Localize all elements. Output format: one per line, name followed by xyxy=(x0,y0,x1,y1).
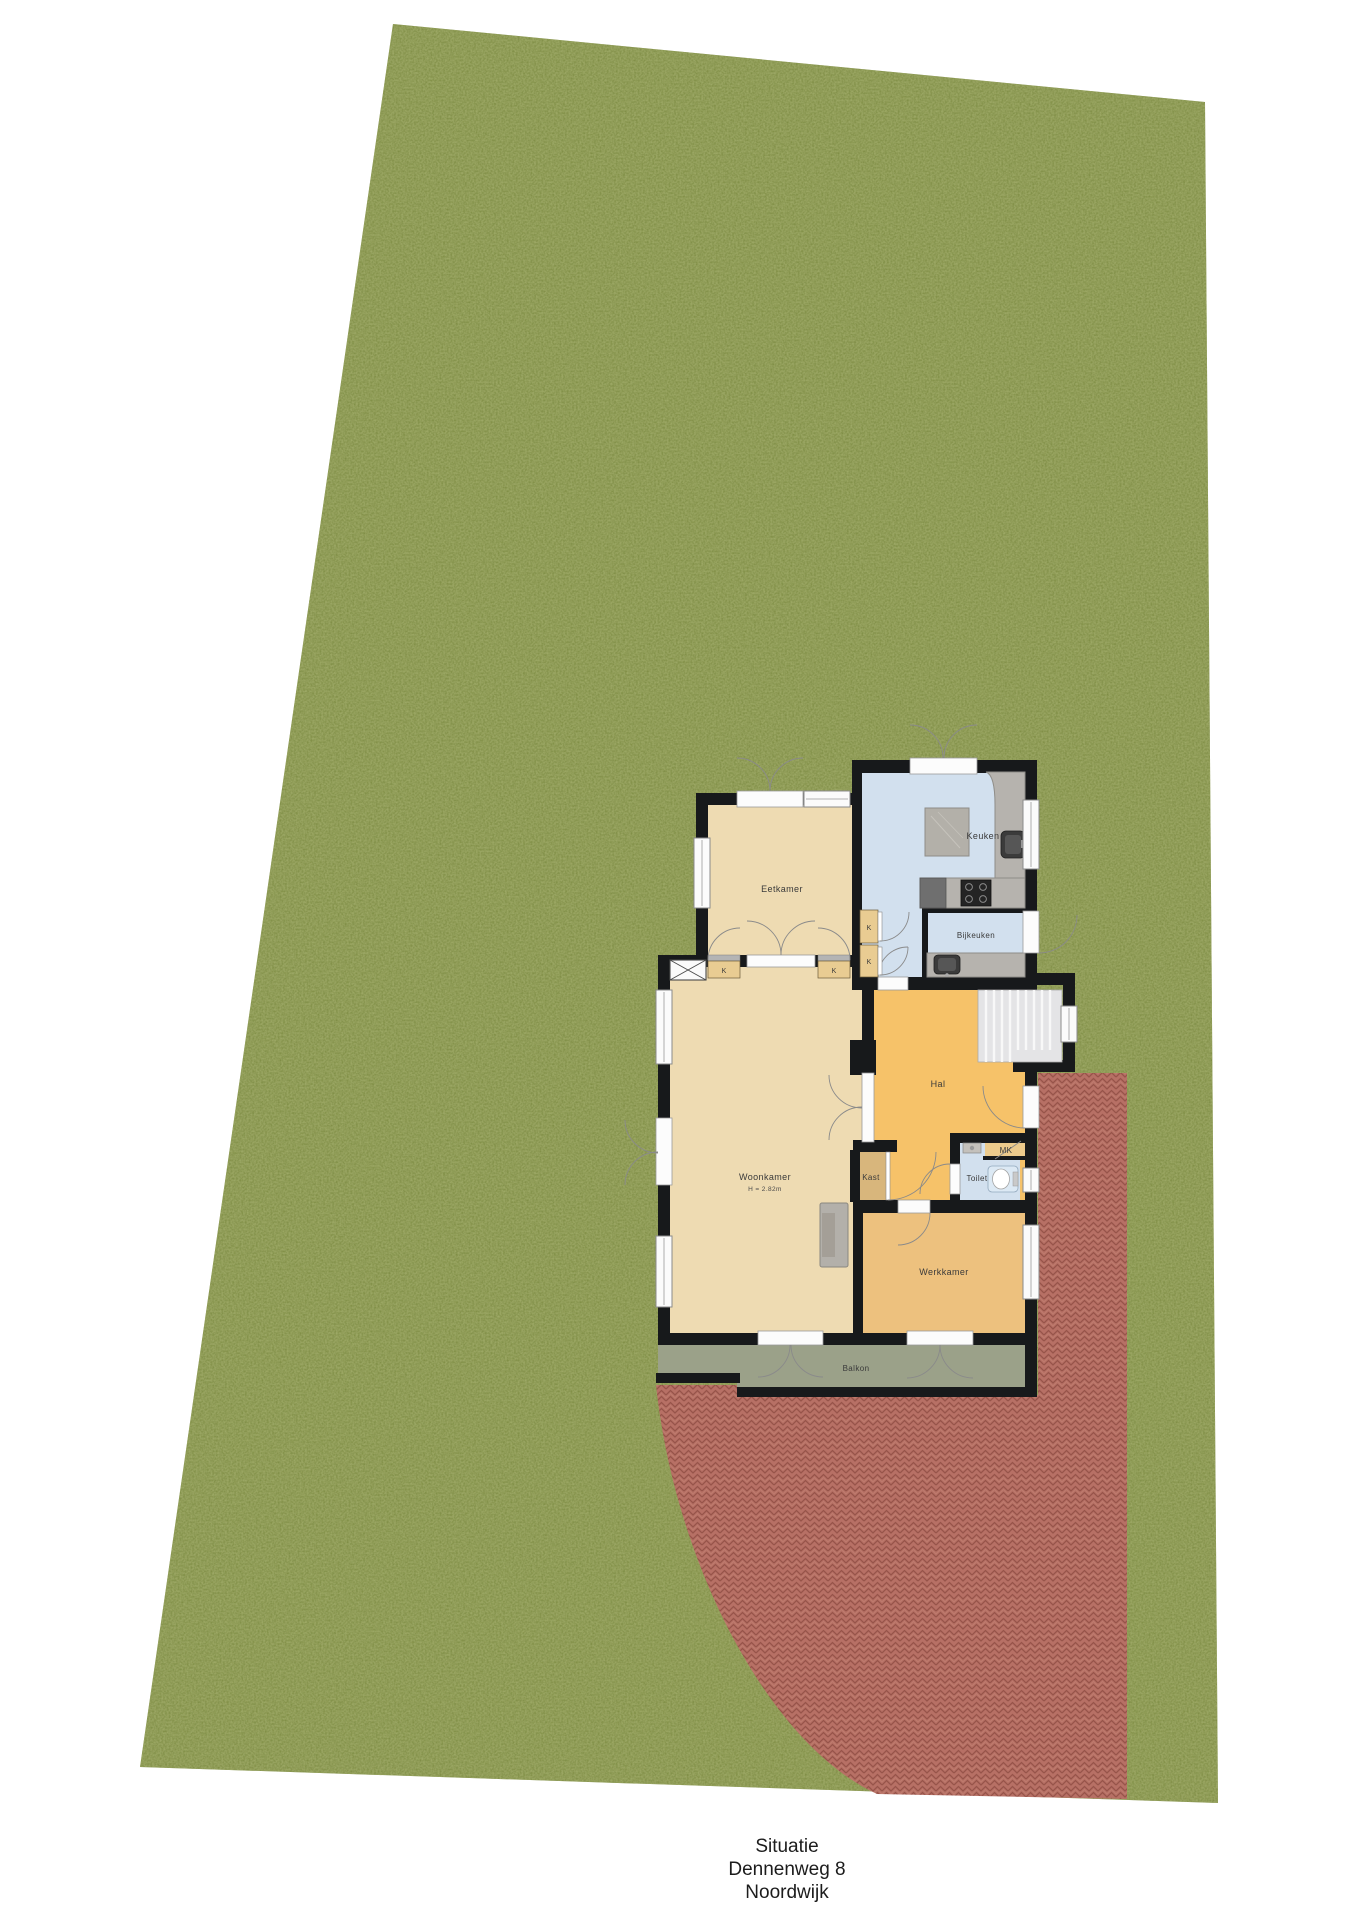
label-eetkamer: Eetkamer xyxy=(761,884,803,894)
label-closet-3: K xyxy=(867,925,872,932)
floor-plan-canvas: Eetkamer Keuken Bijkeuken Hal Woonkamer … xyxy=(0,0,1358,1920)
caption-city: Noordwijk xyxy=(745,1882,829,1903)
label-bijkeuken: Bijkeuken xyxy=(957,931,995,940)
caption: Situatie Dennenweg 8 Noordwijk xyxy=(728,1836,845,1903)
label-woonkamer: Woonkamer xyxy=(739,1172,791,1182)
label-hal: Hal xyxy=(931,1079,946,1089)
window-woonkamer-left-lower xyxy=(656,1236,672,1307)
floor-woonkamer xyxy=(670,967,875,1333)
label-woonkamer-height: H = 2.82m xyxy=(748,1186,782,1193)
stove-icon xyxy=(961,880,991,906)
label-closet-1: K xyxy=(722,968,727,975)
cabinet-cross-icon xyxy=(670,960,706,980)
caption-title: Situatie xyxy=(755,1836,818,1857)
floors xyxy=(658,772,1037,1387)
window-werkkamer-right xyxy=(1023,1225,1039,1299)
label-toilet: Toilet xyxy=(966,1174,987,1183)
label-meterkast: MK xyxy=(1000,1146,1013,1155)
label-werkkamer: Werkkamer xyxy=(919,1267,968,1277)
window-keuken-right xyxy=(1023,800,1039,869)
label-balkon: Balkon xyxy=(843,1364,870,1373)
caption-address: Dennenweg 8 xyxy=(728,1859,845,1880)
kitchen-island xyxy=(925,808,969,856)
kitchen-sink-icon xyxy=(1001,831,1025,858)
window-woonkamer-left-upper xyxy=(656,990,672,1064)
bijkeuken-sink-icon xyxy=(934,955,960,977)
label-keuken: Keuken xyxy=(967,831,1000,841)
window-stairs-right xyxy=(1061,1006,1077,1042)
window-toilet-right xyxy=(1023,1168,1039,1192)
label-closet-2: K xyxy=(832,968,837,975)
window-eetkamer-top xyxy=(804,791,850,807)
situatie-plan-page: Eetkamer Keuken Bijkeuken Hal Woonkamer … xyxy=(0,0,1358,1920)
toilet-bowl-icon xyxy=(988,1166,1018,1192)
fireplace xyxy=(820,1203,848,1267)
floor-balkon-left xyxy=(658,1345,738,1373)
label-closet-4: K xyxy=(867,959,872,966)
floor-eetkamer xyxy=(708,805,852,960)
label-kast: Kast xyxy=(862,1173,880,1182)
kitchen-cabinet xyxy=(920,878,946,908)
staircase xyxy=(978,990,1062,1062)
window-eetkamer-left xyxy=(694,838,710,908)
